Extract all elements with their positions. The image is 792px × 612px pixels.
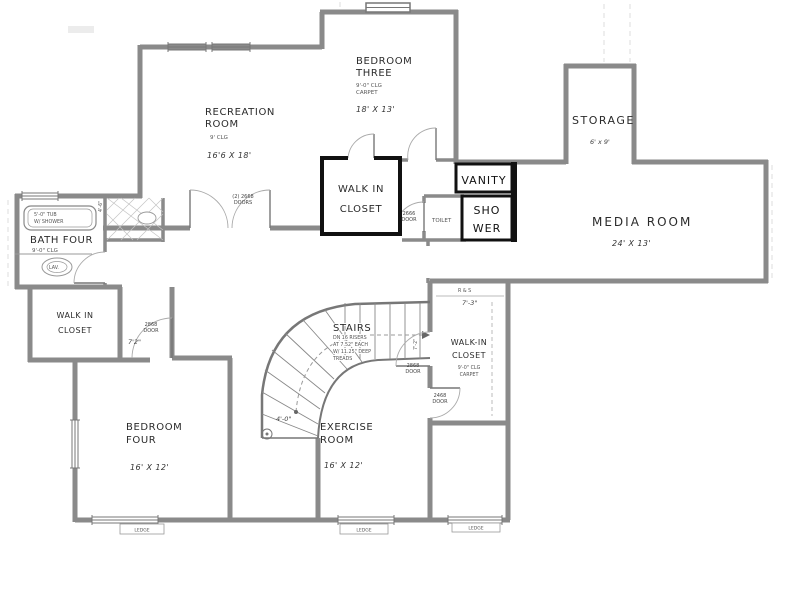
bath4-label: BATH FOUR: [30, 235, 93, 246]
closet-right-label: WALK-IN: [451, 338, 488, 347]
recreation-room-label: RECREATION: [205, 107, 275, 118]
bedroom3-label2: THREE: [355, 68, 392, 79]
stairs-radius-dim: 4'-0": [276, 415, 291, 423]
walls-interior: [105, 160, 466, 287]
stairs-note-2: AT 7.52" EACH: [333, 342, 368, 348]
room-labels: RECREATION ROOM 9' CLG 16'6 X 18' BEDROO…: [30, 56, 692, 472]
closet-right-door-label2: DOOR: [432, 399, 448, 405]
window-ledges: LEDGE LEDGE LEDGE: [120, 523, 500, 534]
bedroom3-clg-note: 9'-0" CLG: [356, 83, 382, 89]
door-leaves: [74, 128, 460, 388]
bedroom4-label2: FOUR: [126, 435, 156, 446]
closet-right-floor-note: CARPET: [460, 372, 479, 378]
stairs-note-4: TREADS: [332, 356, 352, 362]
closet-center-label2: CLOSET: [340, 204, 383, 215]
shower-label: SHO: [474, 204, 501, 217]
closet-center-fill: [322, 158, 400, 234]
bath-dim-vertical: 4'-6": [98, 201, 104, 212]
bath4-tub-note2: W/ SHOWER: [34, 219, 64, 225]
ledge-label-1: LEDGE: [134, 528, 149, 534]
shower-label2: WER: [473, 222, 501, 235]
construction-lines: [8, 2, 772, 286]
toilet-label: TOILET: [431, 218, 452, 224]
storage-label: STORAGE: [572, 114, 635, 127]
doors: [74, 128, 460, 418]
toilet-door-label2: DOOR: [401, 217, 417, 223]
recreation-room-label2: ROOM: [205, 119, 239, 130]
stairs-note-3: W/ 11.25" DEEP: [333, 349, 371, 355]
closet-right-clg-note: 9'-0" CLG: [458, 365, 481, 371]
recreation-clg-note: 9' CLG: [210, 135, 228, 141]
ledge-label-3: LEDGE: [468, 526, 483, 532]
exercise-room-label2: ROOM: [320, 435, 354, 446]
stairs-note-1: DN 16 RISERS: [333, 335, 367, 341]
double-door-label2: DOORS: [234, 200, 252, 206]
closet-left-label: WALK IN: [56, 311, 93, 320]
bath4-clg-note: 9'-0" CLG: [32, 248, 58, 254]
vanity-label: VANITY: [461, 174, 506, 187]
hall-dim-vertical: 7'-2": [413, 339, 419, 350]
closet-right-shelf-note: R & S: [458, 288, 471, 294]
media-room-label: MEDIA ROOM: [592, 215, 692, 229]
floor-plan-page: LEDGE LEDGE LEDGE: [0, 0, 792, 612]
closet-right-label2: CLOSET: [452, 351, 486, 360]
exercise-room-label: EXERCISE: [320, 422, 373, 433]
recreation-dims: 16'6 X 18': [207, 151, 251, 160]
bedroom4-dims: 16' X 12': [130, 463, 169, 472]
door-arcs: [74, 128, 460, 418]
floor-plan: LEDGE LEDGE LEDGE: [0, 0, 792, 612]
bedroom3-dims: 18' X 13': [356, 105, 395, 114]
ledge-label-2: LEDGE: [356, 528, 371, 534]
exercise-door-label2: DOOR: [405, 369, 421, 375]
bath4-lav-label: LAV.: [49, 265, 59, 271]
bedroom4-label: BEDROOM: [126, 422, 182, 433]
bedroom3-label: BEDROOM: [356, 56, 412, 67]
stairs-label: STAIRS: [333, 323, 371, 334]
bath4-tub-note: 5'-0" TUB: [34, 212, 57, 218]
shower-seat: [138, 212, 156, 224]
media-room-dims: 24' X 13': [612, 239, 651, 248]
hall-left-door-label2: DOOR: [143, 328, 159, 334]
closet-center-label: WALK IN: [338, 184, 384, 195]
closet-right-width: 7'-3": [462, 299, 477, 307]
scan-smudge: [68, 26, 94, 33]
closet-left-label2: CLOSET: [58, 326, 92, 335]
storage-dims: 6' x 9': [590, 138, 610, 146]
exercise-room-dims: 16' X 12': [324, 461, 363, 470]
bathtub: [24, 206, 96, 230]
hall-left-dim: 7'2": [128, 338, 141, 346]
bedroom3-floor-note: CARPET: [356, 90, 378, 96]
